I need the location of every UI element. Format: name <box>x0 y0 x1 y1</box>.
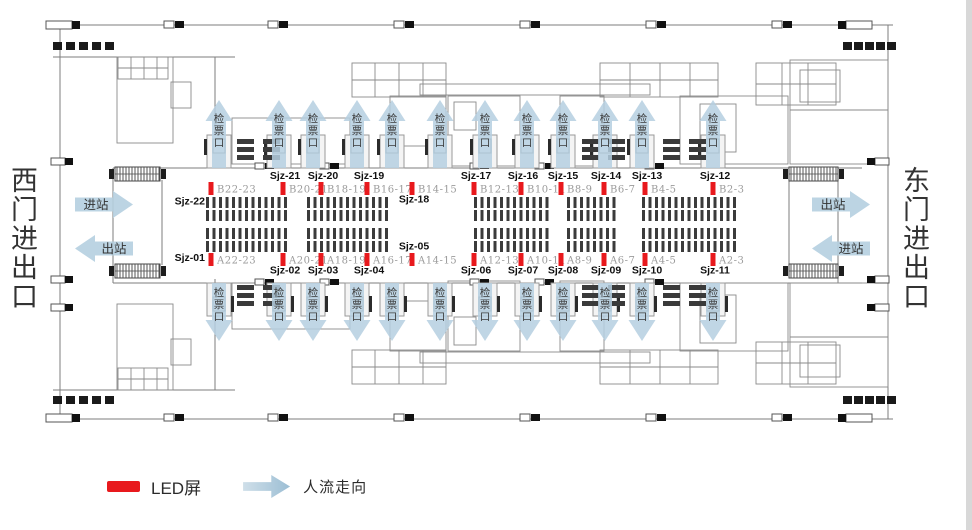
checkpoint-gate-label: 检票口 <box>708 286 719 323</box>
gate-number-label: B12-13 <box>480 185 519 196</box>
led-screen-marker <box>209 253 214 266</box>
led-screen-marker <box>410 253 415 266</box>
checkpoint-gate-label: 检票口 <box>274 112 285 149</box>
led-screen-id: Sjz-16 <box>508 170 539 182</box>
led-screen-id: Sjz-17 <box>461 170 492 182</box>
flow-arrow-label: 进站 <box>83 198 108 212</box>
led-screen-id: Sjz-21 <box>270 170 301 182</box>
checkpoint-gate-label: 检票口 <box>435 112 446 149</box>
led-screen-id: Sjz-14 <box>591 170 622 182</box>
checkpoint-gate-label: 检票口 <box>480 112 491 149</box>
checkpoint-gate-label: 检票口 <box>214 112 225 149</box>
led-screen-marker <box>643 182 648 195</box>
flow-arrow-label: 进站 <box>838 242 863 256</box>
checkpoint-gate-label: 检票口 <box>387 286 398 323</box>
gate-number-label: B22-23 <box>217 185 256 196</box>
flow-arrow-label: 出站 <box>101 242 126 256</box>
checkpoint-gate-label: 检票口 <box>480 286 491 323</box>
gate-number-label: A14-15 <box>417 256 457 267</box>
led-screen-id: Sjz-06 <box>461 265 492 277</box>
led-screen-id: Sjz-10 <box>632 265 663 277</box>
led-screen-id: Sjz-12 <box>700 170 731 182</box>
checkpoint-gate-label: 检票口 <box>352 112 363 149</box>
led-screen-marker <box>519 182 524 195</box>
led-screen-id: Sjz-01 <box>175 252 206 264</box>
led-screen-marker <box>319 182 324 195</box>
checkpoint-gate-label: 检票口 <box>274 286 285 323</box>
station-floorplan-page: 检票口检票口检票口检票口检票口检票口检票口检票口检票口检票口检票口检票口检票口检… <box>0 0 972 530</box>
checkpoint-gate-label: 检票口 <box>522 112 533 149</box>
led-screen-id: Sjz-15 <box>548 170 579 182</box>
checkpoint-gate-label: 检票口 <box>637 112 648 149</box>
led-screen-id: Sjz-11 <box>700 265 730 277</box>
led-screen-id: Sjz-07 <box>508 265 539 277</box>
led-screen-id: Sjz-05 <box>399 241 430 253</box>
checkpoint-arrows: 检票口检票口检票口检票口检票口检票口检票口检票口检票口检票口检票口检票口检票口检… <box>206 100 727 341</box>
checkpoint-gate-label: 检票口 <box>214 286 225 323</box>
gate-number-label: B4-5 <box>651 185 676 196</box>
checkpoint-gate-label: 检票口 <box>352 286 363 323</box>
led-screen-marker <box>281 182 286 195</box>
led-screen-legend-swatch <box>107 481 140 492</box>
led-screen-id: Sjz-04 <box>354 265 385 277</box>
gate-number-label: B8-9 <box>567 185 592 196</box>
led-screen-id: Sjz-18 <box>399 194 430 206</box>
led-screen-id: Sjz-02 <box>270 265 301 277</box>
led-screen-marker <box>559 182 564 195</box>
checkpoint-gate-label: 检票口 <box>600 112 611 149</box>
checkpoint-gate-label: 检票口 <box>387 112 398 149</box>
rooms <box>117 57 888 390</box>
station-floor-plan: 检票口检票口检票口检票口检票口检票口检票口检票口检票口检票口检票口检票口检票口检… <box>0 0 972 530</box>
led-screen-id: Sjz-19 <box>354 170 385 182</box>
led-screen-id: Sjz-20 <box>308 170 339 182</box>
gate-number-label: B2-3 <box>719 185 744 196</box>
page-edge <box>966 0 972 530</box>
checkpoint-gate-label: 检票口 <box>435 286 446 323</box>
checkpoint-gate-label: 检票口 <box>600 286 611 323</box>
checkpoint-gate-label: 检票口 <box>637 286 648 323</box>
led-screen-marker <box>472 182 477 195</box>
flow-arrow-label: 出站 <box>820 198 845 212</box>
flow-direction-legend-arrow-icon <box>243 475 290 498</box>
gate-number-label: A22-23 <box>216 256 256 267</box>
led-screen-marker <box>602 182 607 195</box>
led-screen-id: Sjz-13 <box>632 170 663 182</box>
checkpoint-gate-label: 检票口 <box>308 112 319 149</box>
led-screen-marker <box>365 182 370 195</box>
west-gate-label: 西门进出口 <box>8 166 35 311</box>
gate-number-label: B18-19 <box>327 185 366 196</box>
checkpoint-gate-label: 检票口 <box>708 112 719 149</box>
gate-number-label: B6-7 <box>610 185 635 196</box>
checkpoint-gate-label: 检票口 <box>558 112 569 149</box>
led-screen-id: Sjz-03 <box>308 265 339 277</box>
legend: LED屏 人流走向 <box>107 474 367 499</box>
checkpoint-gate-label: 检票口 <box>308 286 319 323</box>
led-screen-id: Sjz-08 <box>548 265 579 277</box>
checkpoint-gate-label: 检票口 <box>558 286 569 323</box>
led-screen-id: Sjz-09 <box>591 265 622 277</box>
east-gate-label: 东门进出口 <box>900 166 927 311</box>
led-screen-marker <box>711 182 716 195</box>
door-marks <box>46 21 896 422</box>
waiting-seat-rows <box>206 197 736 252</box>
led-screens: B22-23Sjz-22B20-21Sjz-21B18-19Sjz-20B16-… <box>175 170 745 277</box>
flow-direction-legend-label: 人流走向 <box>303 476 367 497</box>
led-screen-marker <box>209 182 214 195</box>
checkpoint-gate-label: 检票口 <box>522 286 533 323</box>
led-screen-id: Sjz-22 <box>175 196 206 208</box>
led-screen-legend-label: LED屏 <box>151 474 201 499</box>
